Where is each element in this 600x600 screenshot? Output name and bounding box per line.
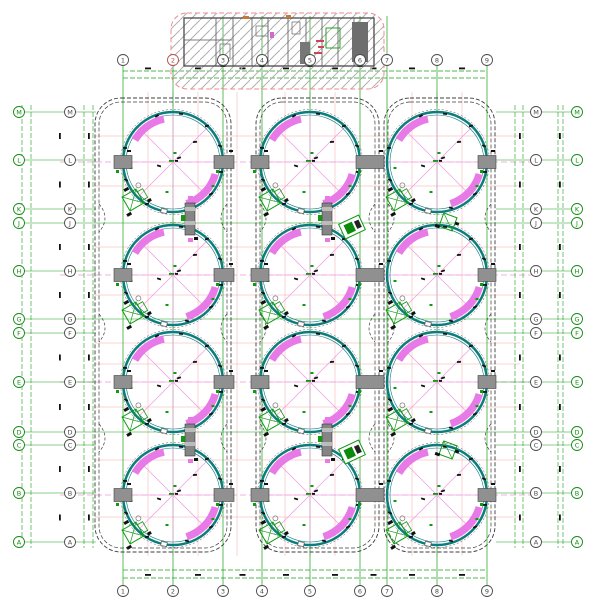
axis-bubble-right-outer-label: E xyxy=(575,378,579,386)
annotation-mark-green xyxy=(174,372,177,374)
axis-bubble-right-inner-label: E xyxy=(534,378,538,386)
axis-bubble-bottom-label: 6 xyxy=(358,587,362,595)
annotation-mark xyxy=(229,263,233,265)
annotation-mark xyxy=(260,367,264,369)
axis-bubble-top-label: 1 xyxy=(121,56,125,64)
walkway-green-dot xyxy=(358,283,361,286)
annotation-mark xyxy=(127,483,131,485)
tank-rim-door xyxy=(161,542,168,547)
annotation-mark-green xyxy=(394,387,397,389)
annotation-mark-green xyxy=(476,298,479,300)
dim-text-mark xyxy=(559,515,561,521)
annotation-mark-green xyxy=(349,185,352,187)
axis-bubble-right-outer-label: L xyxy=(575,156,579,164)
annotation-mark xyxy=(491,483,495,485)
axis-bubble-left-inner-label: D xyxy=(67,428,72,436)
building-orange-mark xyxy=(243,16,249,19)
tank-center-label-mark xyxy=(312,273,315,275)
dim-text-mark xyxy=(59,515,61,521)
dim-text-mark xyxy=(559,355,561,361)
dim-text-mark xyxy=(240,574,246,576)
axis-bubble-right-inner-label: C xyxy=(534,441,539,449)
walkway-block xyxy=(214,376,234,389)
annotation-mark xyxy=(379,370,383,372)
annotation-mark xyxy=(127,263,131,265)
tank-center-label-mark xyxy=(433,273,438,275)
annotation-mark xyxy=(127,370,131,372)
walkway-green-dot xyxy=(358,170,361,173)
annotation-mark-green xyxy=(438,265,441,267)
annotation-mark-green xyxy=(394,167,397,169)
tank-rim-door xyxy=(161,209,168,214)
dim-text-mark xyxy=(88,466,90,472)
annotation-mark-green xyxy=(476,185,479,187)
tank-center-label-mark xyxy=(175,160,178,162)
tank-center-label-mark xyxy=(439,493,442,495)
walkway-block xyxy=(356,489,384,502)
walkway-block xyxy=(214,489,234,502)
dim-text-mark xyxy=(409,68,415,70)
axis-bubble-top-label: 9 xyxy=(485,56,489,64)
annotation-mark xyxy=(264,150,268,152)
walkway-green-dot xyxy=(253,283,256,286)
dim-text-mark xyxy=(88,404,90,410)
tank-center-label-mark xyxy=(169,273,174,275)
annotation-mark xyxy=(387,480,391,482)
background xyxy=(0,0,600,600)
tank-rim-door xyxy=(298,542,305,547)
tank-center-label-mark xyxy=(175,493,178,495)
annotation-mark xyxy=(219,284,223,286)
dim-text-mark xyxy=(59,244,61,250)
walkway-block xyxy=(114,269,132,282)
dim-text-mark xyxy=(519,133,521,139)
walkway-green-dot xyxy=(480,390,483,393)
building-red-label-mark xyxy=(316,40,324,42)
building-orange-mark xyxy=(286,15,291,18)
annotation-mark-green xyxy=(476,405,479,407)
axis-bubble-left-inner-label: K xyxy=(68,205,73,213)
tank-rim-door xyxy=(425,542,432,547)
dim-text-mark xyxy=(519,515,521,521)
annotation-mark-green xyxy=(303,411,306,413)
tank-rim-door xyxy=(425,209,432,214)
annotation-mark-green xyxy=(303,191,306,193)
axis-bubble-top-label: 4 xyxy=(260,56,264,64)
axis-bubble-bottom-label: 4 xyxy=(260,587,264,595)
annotation-mark-green xyxy=(430,524,433,526)
axis-bubble-right-outer-label: F xyxy=(575,329,579,337)
annotation-mark-green xyxy=(438,485,441,487)
annotation-mark-green xyxy=(174,485,177,487)
annotation-mark xyxy=(264,263,268,265)
annotation-mark xyxy=(260,260,264,262)
annotation-mark-green xyxy=(438,372,441,374)
axis-bubble-left-inner-label: A xyxy=(68,538,73,546)
walkway-block xyxy=(251,269,269,282)
dim-text-mark xyxy=(88,244,90,250)
walkway-green-dot xyxy=(480,170,483,173)
axis-bubble-right-outer-label: M xyxy=(574,108,580,116)
dim-text-mark xyxy=(519,466,521,472)
annotation-mark-green xyxy=(430,411,433,413)
annotation-mark xyxy=(123,480,127,482)
dim-text-mark xyxy=(559,182,561,188)
axis-bubble-left-inner-label: L xyxy=(68,156,72,164)
tank-rim-door xyxy=(425,322,432,327)
walkway-green-dot xyxy=(358,390,361,393)
dim-text-mark xyxy=(88,292,90,298)
annotation-mark xyxy=(491,370,495,372)
axis-bubble-left-inner-label: G xyxy=(67,315,72,323)
dim-text-mark xyxy=(88,182,90,188)
annotation-mark xyxy=(483,171,487,173)
axis-bubble-bottom-label: 7 xyxy=(385,587,389,595)
tank-center-label-mark xyxy=(312,493,315,495)
annotation-mark-green xyxy=(311,265,314,267)
axis-bubble-left-outer-label: D xyxy=(16,428,21,436)
annotation-mark-green xyxy=(212,518,215,520)
annotation-mark-green xyxy=(212,405,215,407)
axis-bubble-left-outer-label: J xyxy=(17,219,20,227)
tank-center-label-mark xyxy=(306,493,311,495)
dim-text-mark xyxy=(519,182,521,188)
annotation-mark-green xyxy=(212,298,215,300)
annotation-mark xyxy=(379,150,383,152)
axis-bubble-top-label: 6 xyxy=(358,56,362,64)
dim-text-mark xyxy=(195,574,201,576)
dim-text-mark xyxy=(559,133,561,139)
tank-center-label-mark xyxy=(433,380,438,382)
axis-bubble-right-outer-label: H xyxy=(575,267,580,275)
annotation-mark xyxy=(123,147,127,149)
annotation-mark-green xyxy=(349,405,352,407)
axis-bubble-left-inner-label: H xyxy=(68,267,73,275)
tank-rim-door xyxy=(161,322,168,327)
annotation-mark xyxy=(260,480,264,482)
axis-bubble-left-outer-label: L xyxy=(17,156,21,164)
axis-bubble-top-label: 8 xyxy=(435,56,439,64)
axis-bubble-right-inner-label: A xyxy=(534,538,539,546)
annotation-mark xyxy=(387,147,391,149)
building-red-label-mark xyxy=(314,52,322,54)
tank-center-label-mark xyxy=(175,380,178,382)
walkway-green-dot xyxy=(116,170,119,173)
walkway-green-dot xyxy=(216,503,219,506)
annotation-mark xyxy=(387,367,391,369)
axis-bubble-right-inner-label: F xyxy=(534,329,538,337)
axis-bubble-left-outer-label: K xyxy=(17,205,22,213)
dim-text-mark xyxy=(519,292,521,298)
annotation-mark xyxy=(229,483,233,485)
tank-center-label-mark xyxy=(306,160,311,162)
annotation-mark xyxy=(264,483,268,485)
walkway-green-dot xyxy=(253,390,256,393)
annotation-mark-green xyxy=(166,191,169,193)
dim-text-mark xyxy=(59,182,61,188)
dim-text-mark xyxy=(145,574,151,576)
annotation-mark-green xyxy=(166,411,169,413)
annotation-mark-green xyxy=(311,485,314,487)
annotation-mark-green xyxy=(349,298,352,300)
axis-bubble-left-outer-label: C xyxy=(17,441,22,449)
walkway-green-dot xyxy=(253,170,256,173)
dim-text-mark xyxy=(332,574,338,576)
annotation-mark-green xyxy=(303,524,306,526)
annotation-mark xyxy=(483,284,487,286)
walkway-green-dot xyxy=(116,503,119,506)
dim-text-mark xyxy=(559,404,561,410)
walkway-green-dot xyxy=(253,503,256,506)
axis-bubble-right-inner-label: D xyxy=(533,428,538,436)
walkway-green-dot xyxy=(116,283,119,286)
axis-bubble-bottom-label: 1 xyxy=(121,587,125,595)
dim-text-mark xyxy=(59,133,61,139)
annotation-mark-green xyxy=(212,185,215,187)
tank-center-label-mark xyxy=(169,160,174,162)
annotation-mark xyxy=(123,367,127,369)
walkway-block xyxy=(251,376,269,389)
annotation-mark xyxy=(491,263,495,265)
walkway-block xyxy=(214,156,234,169)
walkway-block xyxy=(478,269,496,282)
tank-rim-door xyxy=(298,322,305,327)
walkway-green-dot xyxy=(216,390,219,393)
walkway-green-dot xyxy=(480,283,483,286)
axis-bubble-right-inner-label: J xyxy=(534,219,537,227)
building-red-label-mark xyxy=(318,46,324,48)
tank-rim-door xyxy=(298,209,305,214)
dim-text-mark xyxy=(459,68,465,70)
annotation-mark-green xyxy=(311,372,314,374)
tank-center-label-mark xyxy=(175,273,178,275)
annotation-mark xyxy=(123,260,127,262)
annotation-mark xyxy=(379,483,383,485)
tank-rim-door xyxy=(161,429,168,434)
dim-text-mark xyxy=(88,515,90,521)
axis-bubble-right-inner-label: L xyxy=(534,156,538,164)
dim-text-mark xyxy=(519,355,521,361)
axis-bubble-bottom-label: 8 xyxy=(435,587,439,595)
axis-bubble-top-label: 5 xyxy=(308,56,312,64)
annotation-mark-green xyxy=(174,152,177,154)
axis-bubble-right-inner-label: G xyxy=(533,315,538,323)
axis-bubble-right-inner-label: M xyxy=(533,108,539,116)
walkway-block xyxy=(114,376,132,389)
walkway-green-dot xyxy=(216,170,219,173)
tank-center-label-mark xyxy=(306,273,311,275)
tank-rim-door xyxy=(425,429,432,434)
dim-text-mark xyxy=(459,574,465,576)
axis-bubble-left-inner-label: E xyxy=(68,378,72,386)
walkway-block xyxy=(251,489,269,502)
axis-bubble-left-outer-label: B xyxy=(17,489,21,497)
annotation-mark xyxy=(229,150,233,152)
dim-text-mark xyxy=(59,466,61,472)
dim-text-mark xyxy=(88,133,90,139)
tank-center-label-mark xyxy=(439,380,442,382)
annotation-mark-green xyxy=(430,304,433,306)
walkway-block xyxy=(251,156,269,169)
annotation-mark xyxy=(264,370,268,372)
tank-rim-door xyxy=(298,429,305,434)
walkway-green-dot xyxy=(216,283,219,286)
annotation-mark-green xyxy=(303,304,306,306)
walkway-block xyxy=(478,489,496,502)
annotation-mark xyxy=(260,147,264,149)
building-magenta-mark xyxy=(270,32,274,38)
dim-text-mark xyxy=(59,355,61,361)
axis-bubble-right-outer-label: A xyxy=(575,538,580,546)
annotation-mark xyxy=(483,504,487,506)
site-plan-page: 112233445566778899MMMMLLLLKKKKJJJJHHHHGG… xyxy=(0,0,600,600)
dim-text-mark xyxy=(145,68,151,70)
axis-bubble-bottom-label: 2 xyxy=(171,587,175,595)
axis-bubble-left-outer-label: A xyxy=(17,538,22,546)
dim-text-mark xyxy=(283,574,289,576)
axis-bubble-bottom-label: 3 xyxy=(221,587,225,595)
dim-text-mark xyxy=(371,574,377,576)
site-plan-canvas: 112233445566778899MMMMLLLLKKKKJJJJHHHHGG… xyxy=(0,0,600,600)
walkway-green-dot xyxy=(358,503,361,506)
annotation-mark xyxy=(219,391,223,393)
axis-bubble-left-inner-label: M xyxy=(67,108,73,116)
walkway-block xyxy=(356,376,384,389)
annotation-mark-green xyxy=(174,265,177,267)
axis-bubble-left-inner-label: C xyxy=(68,441,73,449)
annotation-mark xyxy=(229,370,233,372)
dim-text-mark xyxy=(559,466,561,472)
annotation-mark-green xyxy=(430,191,433,193)
annotation-mark xyxy=(219,504,223,506)
tank-center-label-mark xyxy=(439,160,442,162)
annotation-mark-green xyxy=(349,518,352,520)
dim-text-mark xyxy=(409,574,415,576)
annotation-mark xyxy=(491,150,495,152)
annotation-mark-green xyxy=(438,152,441,154)
annotation-mark-green xyxy=(394,500,397,502)
walkway-block xyxy=(214,269,234,282)
dim-text-mark xyxy=(59,292,61,298)
axis-bubble-left-outer-label: G xyxy=(16,315,21,323)
axis-bubble-top-label: 3 xyxy=(221,56,225,64)
walkway-block xyxy=(114,489,132,502)
axis-bubble-left-inner-label: F xyxy=(68,329,72,337)
axis-bubble-top-label: 7 xyxy=(385,56,389,64)
axis-bubble-right-outer-label: G xyxy=(574,315,579,323)
tank-center-label-mark xyxy=(433,493,438,495)
annotation-mark xyxy=(379,263,383,265)
axis-bubble-right-outer-label: J xyxy=(575,219,578,227)
annotation-mark xyxy=(483,391,487,393)
walkway-block xyxy=(114,156,132,169)
axis-bubble-right-outer-label: K xyxy=(575,205,580,213)
tank-center-label-mark xyxy=(169,380,174,382)
dim-text-mark xyxy=(559,244,561,250)
axis-bubble-top-label: 2 xyxy=(171,56,175,64)
axis-bubble-right-inner-label: K xyxy=(534,205,539,213)
annotation-mark-green xyxy=(166,524,169,526)
dim-text-mark xyxy=(559,292,561,298)
axis-bubble-right-outer-label: D xyxy=(574,428,579,436)
axis-bubble-left-outer-label: F xyxy=(17,329,21,337)
tank-center-label-mark xyxy=(306,380,311,382)
axis-bubble-left-outer-label: H xyxy=(17,267,22,275)
annotation-mark xyxy=(219,171,223,173)
axis-bubble-right-outer-label: B xyxy=(575,489,579,497)
axis-bubble-left-outer-label: E xyxy=(17,378,21,386)
axis-bubble-right-inner-label: B xyxy=(534,489,538,497)
tank-center-label-mark xyxy=(312,160,315,162)
tank-center-label-mark xyxy=(312,380,315,382)
walkway-green-dot xyxy=(480,503,483,506)
dim-text-mark xyxy=(88,355,90,361)
annotation-mark-green xyxy=(311,152,314,154)
walkway-block xyxy=(478,376,496,389)
dim-text-mark xyxy=(519,244,521,250)
walkway-green-dot xyxy=(116,390,119,393)
walkway-block xyxy=(356,269,384,282)
axis-bubble-left-inner-label: J xyxy=(68,219,71,227)
annotation-mark xyxy=(127,150,131,152)
tank-center-label-mark xyxy=(169,493,174,495)
axis-bubble-right-inner-label: H xyxy=(534,267,539,275)
dim-text-mark xyxy=(519,404,521,410)
annotation-mark-green xyxy=(476,518,479,520)
axis-bubble-right-outer-label: C xyxy=(575,441,580,449)
tank-center-label-mark xyxy=(439,273,442,275)
axis-bubble-bottom-label: 9 xyxy=(485,587,489,595)
tank-center-label-mark xyxy=(433,160,438,162)
annotation-mark-green xyxy=(394,280,397,282)
annotation-mark xyxy=(387,260,391,262)
axis-bubble-left-inner-label: B xyxy=(68,489,72,497)
walkway-block xyxy=(356,156,384,169)
walkway-block xyxy=(478,156,496,169)
axis-bubble-bottom-label: 5 xyxy=(308,587,312,595)
dim-text-mark xyxy=(59,404,61,410)
annotation-mark-green xyxy=(166,304,169,306)
axis-bubble-left-outer-label: M xyxy=(16,108,22,116)
